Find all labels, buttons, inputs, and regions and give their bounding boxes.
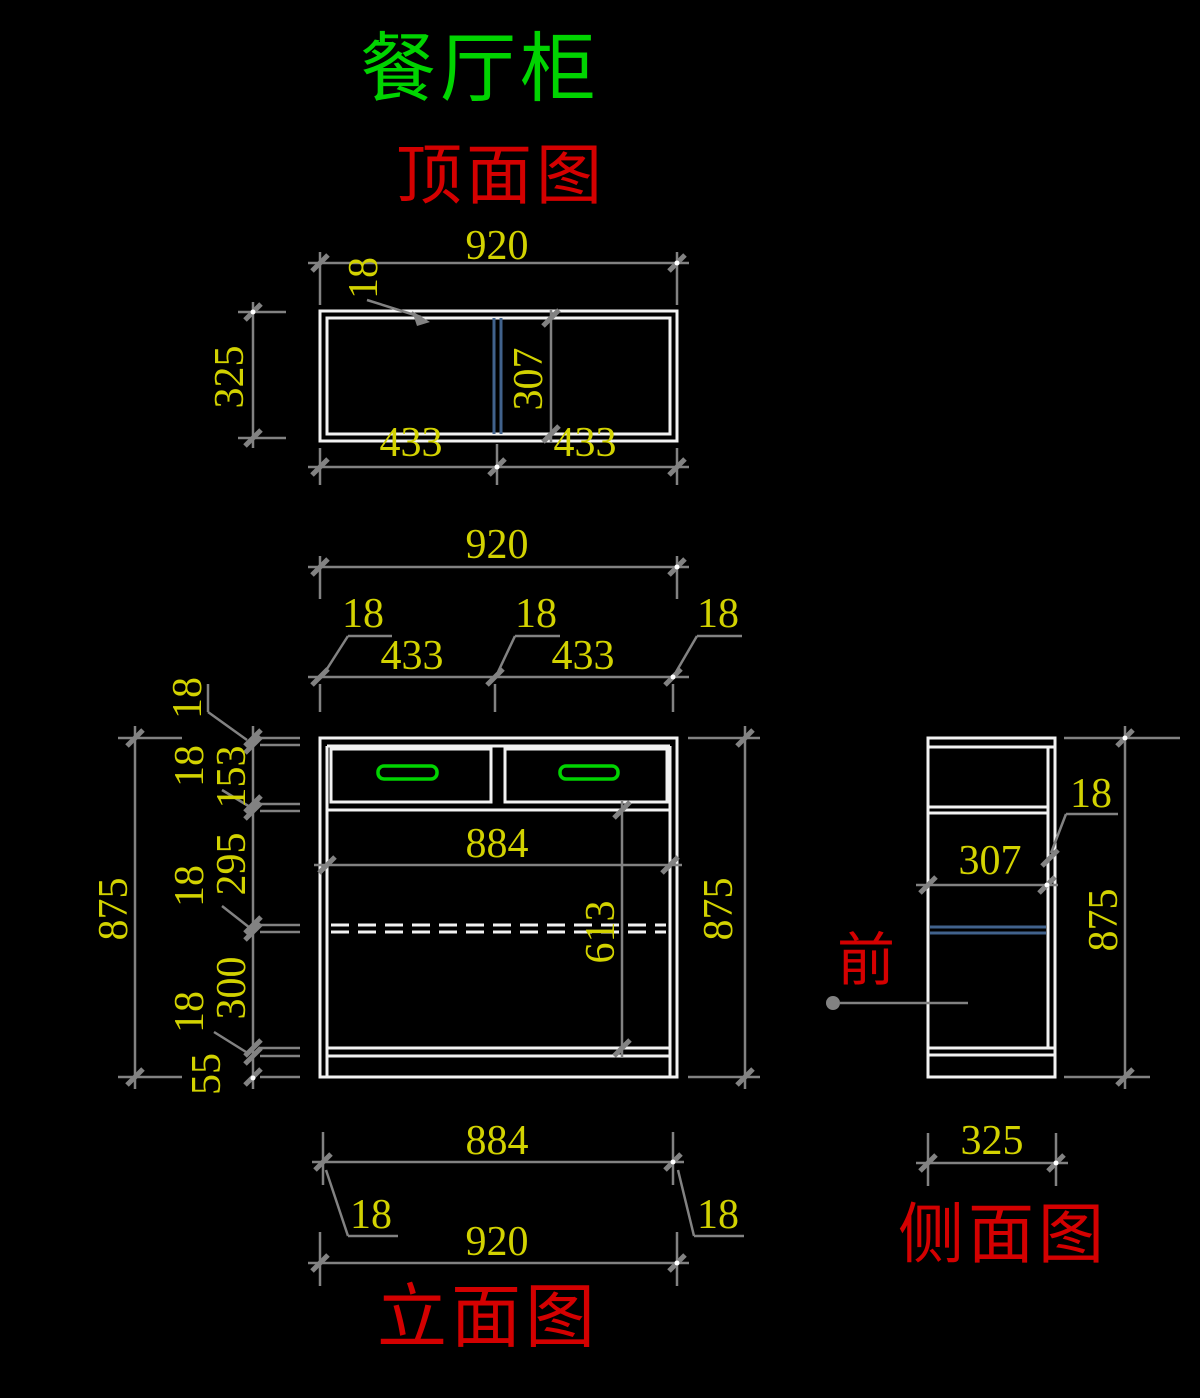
dim-front-upper-space: 295: [211, 833, 253, 896]
side-front-marker: 前: [837, 932, 899, 990]
side-view-outline: [928, 738, 1055, 1077]
dim-front-width-bottom: 920: [466, 1221, 529, 1263]
dim-front-width-top: 920: [466, 524, 529, 566]
dim-front-height-left: 875: [93, 878, 135, 941]
top-view-label: 顶面图: [396, 144, 606, 210]
dimension-endpoint-dots: [251, 261, 1128, 1266]
drawer-handles: [378, 766, 618, 779]
dim-front-plinth: 55: [186, 1053, 228, 1095]
dim-top-panel-thickness: 18: [343, 257, 385, 299]
drawing-title: 餐厅柜: [360, 32, 600, 108]
dim-top-left-half: 433: [380, 422, 443, 464]
dim-side-back-panel: 18: [1070, 773, 1112, 815]
dim-front-shelf: 18: [169, 865, 211, 907]
dim-front-offset-left: 18: [350, 1194, 392, 1236]
dim-front-top-panel: 18: [167, 677, 209, 719]
side-shelf-line: [930, 927, 1046, 933]
front-view-label: 立面图: [377, 1284, 599, 1354]
drawer-right: [505, 749, 667, 802]
dim-front-wall-left: 18: [342, 593, 384, 635]
dim-top-depth: 325: [209, 346, 251, 409]
dim-front-offset-right: 18: [697, 1194, 739, 1236]
top-view-center-divider: [494, 318, 501, 434]
dim-front-rail: 18: [169, 745, 211, 787]
front-marker-dot: [826, 996, 840, 1010]
dim-top-inner-depth: 307: [508, 348, 550, 411]
dim-side-height: 875: [1083, 889, 1125, 952]
top-view-dimensions: [238, 252, 689, 485]
dim-front-lower-space: 300: [211, 957, 253, 1020]
side-view-label: 侧面图: [898, 1203, 1108, 1269]
dim-side-depth: 325: [961, 1120, 1024, 1162]
dim-front-inner-width: 884: [466, 823, 529, 865]
top-view-outline: [320, 311, 677, 441]
dim-front-drawer-height: 153: [211, 746, 253, 809]
drawer-left: [331, 749, 491, 802]
dim-side-inner-depth: 307: [959, 840, 1022, 882]
dim-front-wall-right: 18: [697, 593, 739, 635]
drawer-handle-left: [378, 766, 437, 779]
dim-front-bay-left: 433: [381, 635, 444, 677]
dim-front-height-right: 875: [698, 878, 740, 941]
dim-top-right-half: 433: [554, 422, 617, 464]
drawer-handle-right: [560, 766, 618, 779]
dim-front-inner-width-bottom: 884: [466, 1120, 529, 1162]
dim-front-inner-height: 613: [580, 901, 622, 964]
dim-front-bottom-panel: 18: [169, 991, 211, 1033]
dim-top-width: 920: [466, 225, 529, 267]
cad-drawing-canvas: 餐厅柜 顶面图 920 18 325 307 433 433 920 18 18…: [0, 0, 1200, 1398]
dim-front-bay-right: 433: [552, 635, 615, 677]
dim-front-divider: 18: [515, 593, 557, 635]
